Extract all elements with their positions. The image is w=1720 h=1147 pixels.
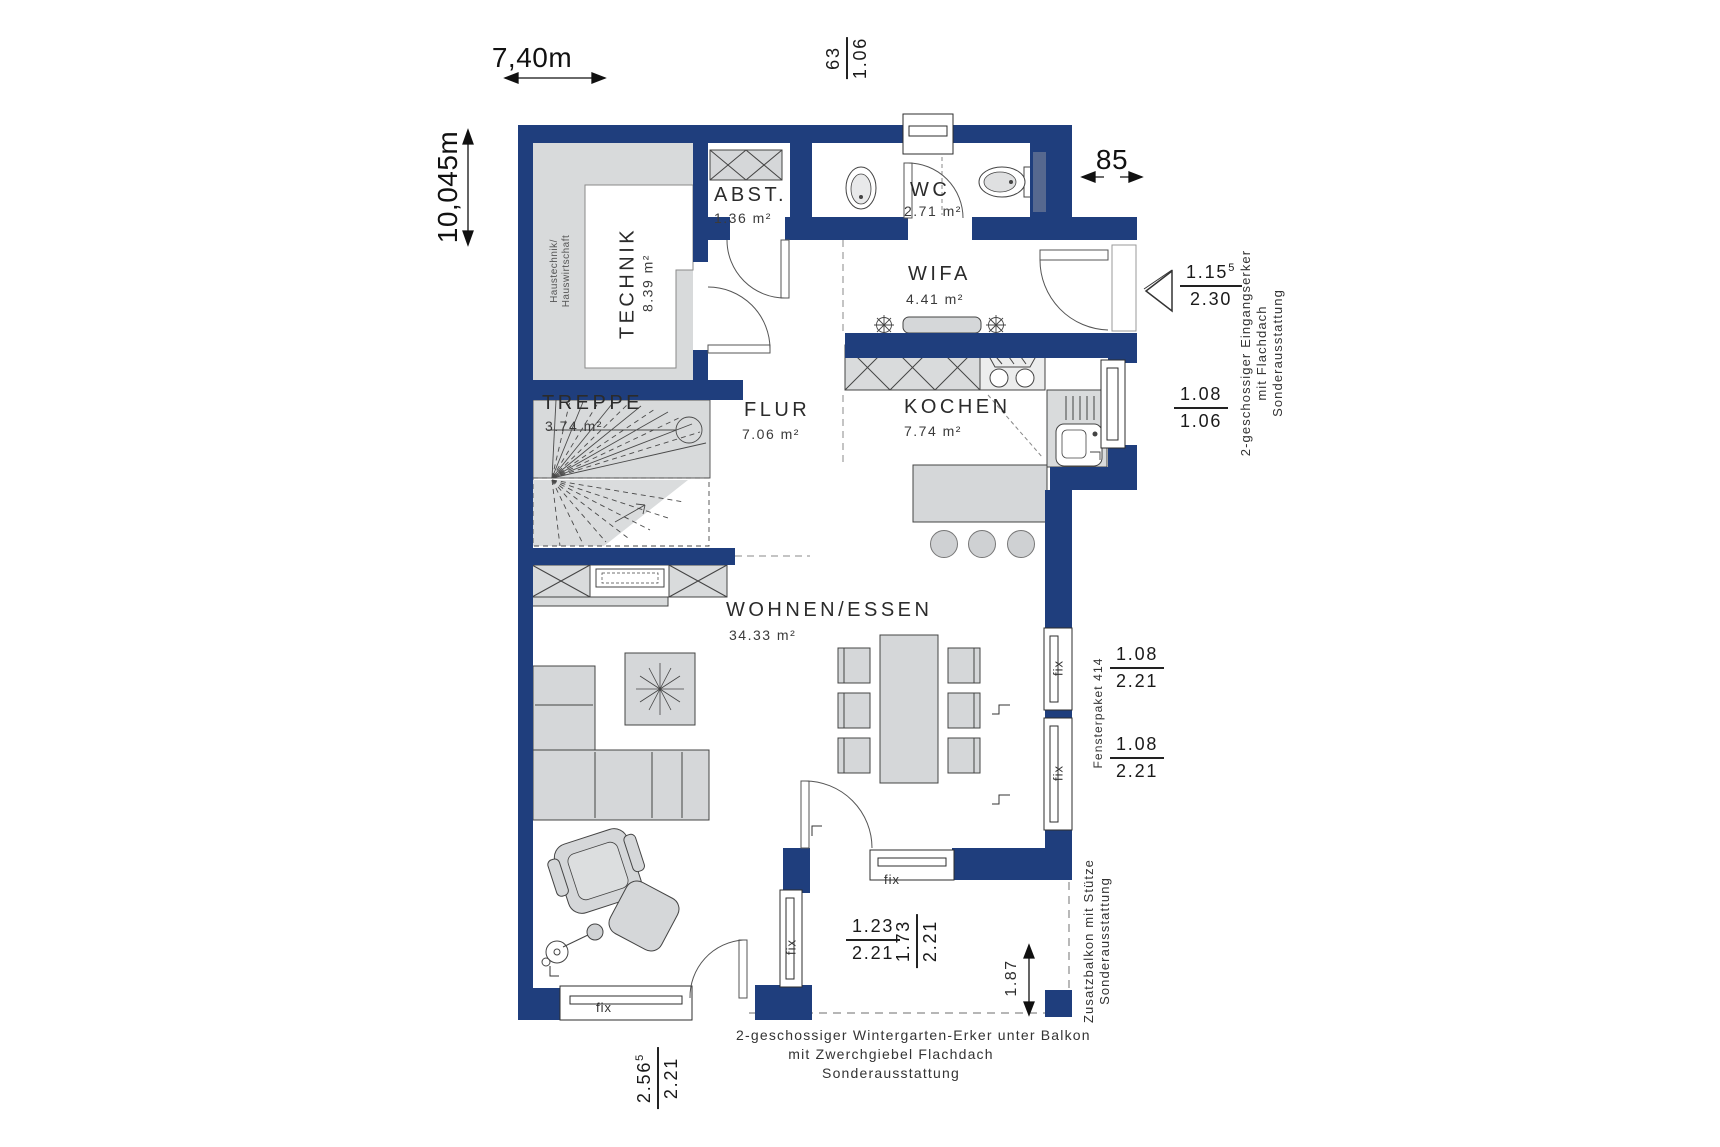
wall-segment [755,985,812,1020]
dim-den: 2.21 [1110,759,1164,782]
room-area: 8.39 m² [640,227,656,339]
dim-den: 2.21 [1110,669,1164,692]
note-line: 2-geschossiger Wintergarten-Erker unter … [736,1026,1046,1045]
note-eingangserker: 2-geschossiger Eingangserker mit Flachda… [1238,250,1286,456]
bar-stool [931,531,958,558]
wall-segment [1108,333,1137,363]
note-line: Sonderausstattung [736,1064,1046,1083]
support-post [1045,990,1072,1017]
wall-segment [693,350,708,380]
note-wintergarten: 2-geschossiger Wintergarten-Erker unter … [736,1026,1046,1083]
dining-table [880,635,938,783]
dim-south-window: 2.565 2.21 [634,1047,682,1109]
dim-sup: 5 [634,1053,646,1061]
door-entry [1040,250,1108,330]
wall-segment [1045,490,1072,630]
chair [948,693,980,728]
door-abst [727,240,789,298]
washbasin [846,167,876,209]
arrow-height-total [463,130,473,245]
dim-num: 1.15 [1186,262,1228,282]
toilet [979,167,1033,197]
wall-segment [785,217,908,240]
door-wintergarten [801,781,872,848]
wall-segment [972,217,1030,240]
note-zusatzbalkon: Zusatzbalkon mit Stütze Sonderausstattun… [1081,859,1113,1023]
wall-segment [518,125,1072,143]
dim-den: 2.21 [918,914,941,968]
dim-right-window-lower: 1.08 2.21 [1110,734,1164,782]
arrow-width-total [505,73,605,83]
bar-stool [969,531,996,558]
window-wintergarten-front [870,850,954,880]
window-south [560,986,692,1020]
fix-label-wintergarten-front: fix [884,872,900,887]
wardrobe [710,150,782,180]
dim-top-window: 63 1.06 [823,37,871,79]
room-area-wohnen: 34.33 m² [729,627,796,643]
sink-counter [1047,390,1107,467]
room-name-treppe: TREPPE [542,392,643,415]
chair [838,693,870,728]
dim-kitchen-window: 1.08 1.06 [1174,384,1228,432]
dim-num: 2.56 [634,1061,654,1103]
dim-num: 1.08 [1174,384,1228,409]
arrow-balcony-depth [1024,945,1034,1015]
fix-label-right-lower: fix [1051,765,1066,781]
entrance-marker-icon [1144,270,1172,311]
dim-den: 2.21 [659,1047,682,1109]
dim-balcony-depth: 1.87 [1003,959,1021,996]
chair [838,648,870,683]
room-area-abst: 1.36 m² [714,210,772,226]
dim-entry-door: 1.155 2.30 [1180,262,1242,310]
wall-segment [518,988,562,1020]
room-area-kochen: 7.74 m² [904,423,962,439]
wall-segment [1030,217,1137,240]
note-line: Sonderausstattung [1270,250,1286,456]
note-line: Hauswirtschaft [561,235,573,308]
fix-label-right-upper: fix [1051,660,1066,676]
dim-width-total: 7,40m [492,42,572,74]
chair [948,738,980,773]
dim-num: 1.73 [893,914,918,968]
chimney-strip [1033,152,1046,212]
door-technik [708,287,770,353]
bar-stool [1008,531,1035,558]
dim-num: 1.08 [1110,734,1164,759]
fix-label-south: fix [596,1000,612,1015]
room-area-wc: 2.71 m² [904,203,962,219]
dim-den: 1.06 [848,37,871,79]
wall-segment [783,848,810,893]
window-kitchen [1101,360,1125,448]
fix-label-wintergarten-side: fix [784,939,799,955]
note-line: mit Flachdach [1254,250,1270,456]
sideboard [532,565,727,606]
room-area-wifa: 4.41 m² [906,291,964,307]
room-name-wohnen: WOHNEN/ESSEN [726,599,932,622]
dim-entry-niche: 85 [1096,144,1128,176]
note-line: Sonderausstattung [1097,859,1113,1023]
door-south [690,940,747,998]
chair [948,648,980,683]
dim-num: 1.08 [1110,644,1164,669]
chair [838,738,870,773]
wall-segment [533,548,735,565]
floorplan-page: 7,40m 10,045m 85 1.87 TECHNIK 8.39 m² AB… [0,0,1720,1147]
kitchen-island [913,465,1047,522]
dim-den: 2.30 [1180,287,1242,310]
dim-sup: 5 [1228,262,1236,274]
bench [903,317,981,333]
room-name-flur: FLUR [744,399,810,422]
note-line: mit Zwerchgiebel Flachdach [736,1045,1046,1064]
room-area-flur: 7.06 m² [742,426,800,442]
entry-threshold [1112,245,1136,331]
coat-hook-icon [874,315,894,335]
dim-right-window-upper: 1.08 2.21 [1110,644,1164,692]
wall-segment [790,143,812,217]
room-name-kochen: KOCHEN [904,396,1011,419]
room-label-technik: TECHNIK 8.39 m² [617,227,656,339]
window-top [903,114,953,154]
wall-segment [693,143,708,262]
dim-den: 1.06 [1174,409,1228,432]
wall-segment [952,848,1072,880]
room-name-wc: WC [910,179,950,202]
room-area-treppe: 3.74 m² [545,418,603,434]
wall-segment [1050,467,1137,490]
room-name-wifa: WIFA [908,263,971,286]
dim-num: 63 [823,37,848,79]
wall-segment [1045,828,1072,848]
note-fensterpaket: Fensterpaket 414 [1090,658,1106,769]
floorplan-drawing [0,0,1720,1147]
note-haustechnik: Haustechnik/ Hauswirtschaft [549,235,573,308]
dim-height-total: 10,045m [432,131,464,243]
dim-wintergarten-front: 1.73 2.21 [893,914,941,968]
room-name: TECHNIK [617,227,640,339]
floor-lamp-icon [542,924,603,966]
note-line: Haustechnik/ [549,235,561,308]
wall-segment [845,333,1108,358]
note-line: Zusatzbalkon mit Stütze [1081,859,1097,1023]
coffee-table [625,653,695,725]
wall-segment [518,143,533,988]
room-name-abst: ABST. [714,184,787,207]
coat-hook-icon [986,315,1006,335]
